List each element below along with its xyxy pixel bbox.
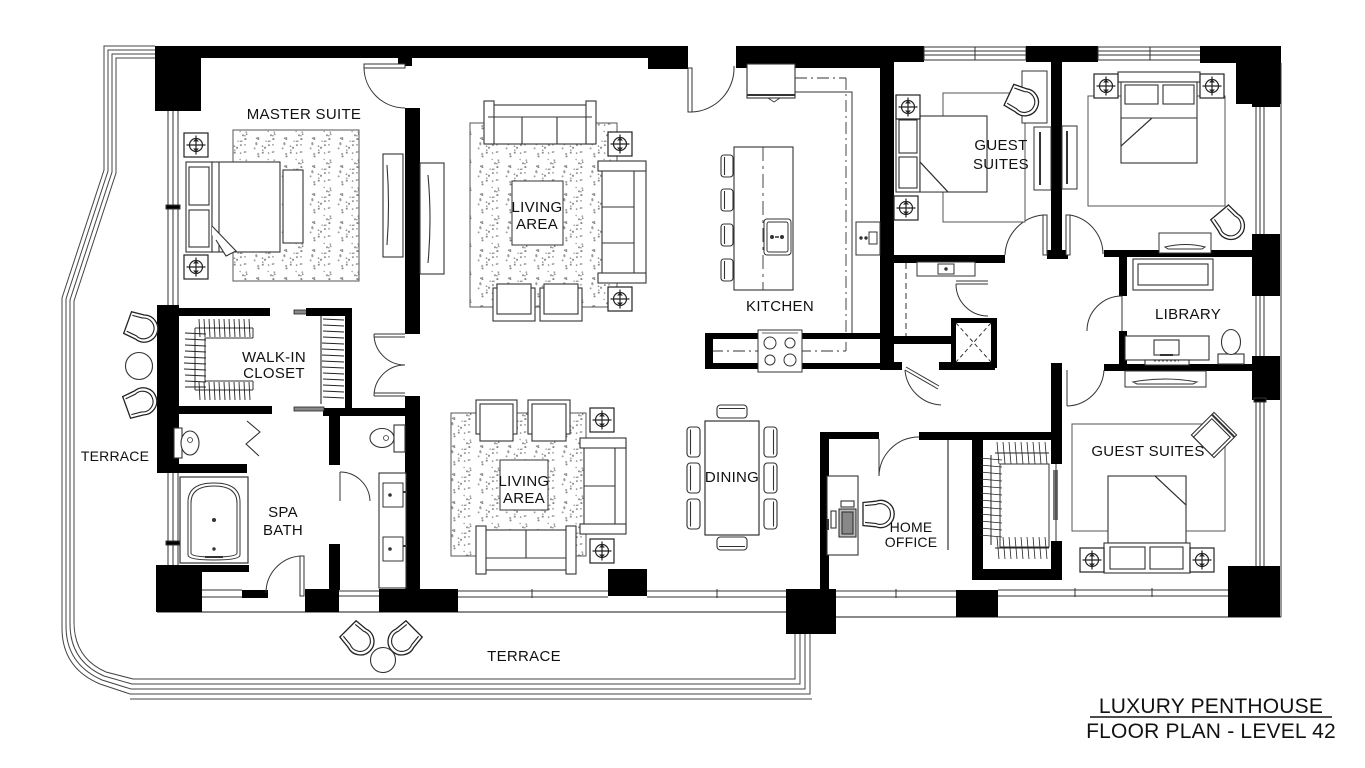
svg-text:TERRACE: TERRACE xyxy=(487,648,561,665)
svg-text:CLOSET: CLOSET xyxy=(243,365,305,382)
svg-text:SPA: SPA xyxy=(268,504,298,521)
svg-text:AREA: AREA xyxy=(503,490,545,507)
svg-text:LIBRARY: LIBRARY xyxy=(1155,306,1221,323)
svg-text:SUITES: SUITES xyxy=(973,156,1029,173)
svg-text:BATH: BATH xyxy=(263,522,303,539)
svg-text:TERRACE: TERRACE xyxy=(81,448,149,464)
svg-text:WALK-IN: WALK-IN xyxy=(242,349,306,366)
svg-text:LIVING: LIVING xyxy=(512,199,563,216)
svg-text:FLOOR PLAN - LEVEL 42: FLOOR PLAN - LEVEL 42 xyxy=(1086,720,1336,743)
svg-text:MASTER SUITE: MASTER SUITE xyxy=(247,106,361,123)
svg-text:LIVING: LIVING xyxy=(499,473,550,490)
svg-text:KITCHEN: KITCHEN xyxy=(746,298,814,315)
svg-text:AREA: AREA xyxy=(516,216,558,233)
svg-text:DINING: DINING xyxy=(705,469,759,486)
svg-text:GUEST SUITES: GUEST SUITES xyxy=(1091,443,1204,460)
svg-text:OFFICE: OFFICE xyxy=(885,534,938,550)
svg-text:HOME: HOME xyxy=(890,519,933,535)
svg-text:LUXURY PENTHOUSE: LUXURY PENTHOUSE xyxy=(1099,695,1323,718)
svg-text:GUEST: GUEST xyxy=(974,137,1027,154)
